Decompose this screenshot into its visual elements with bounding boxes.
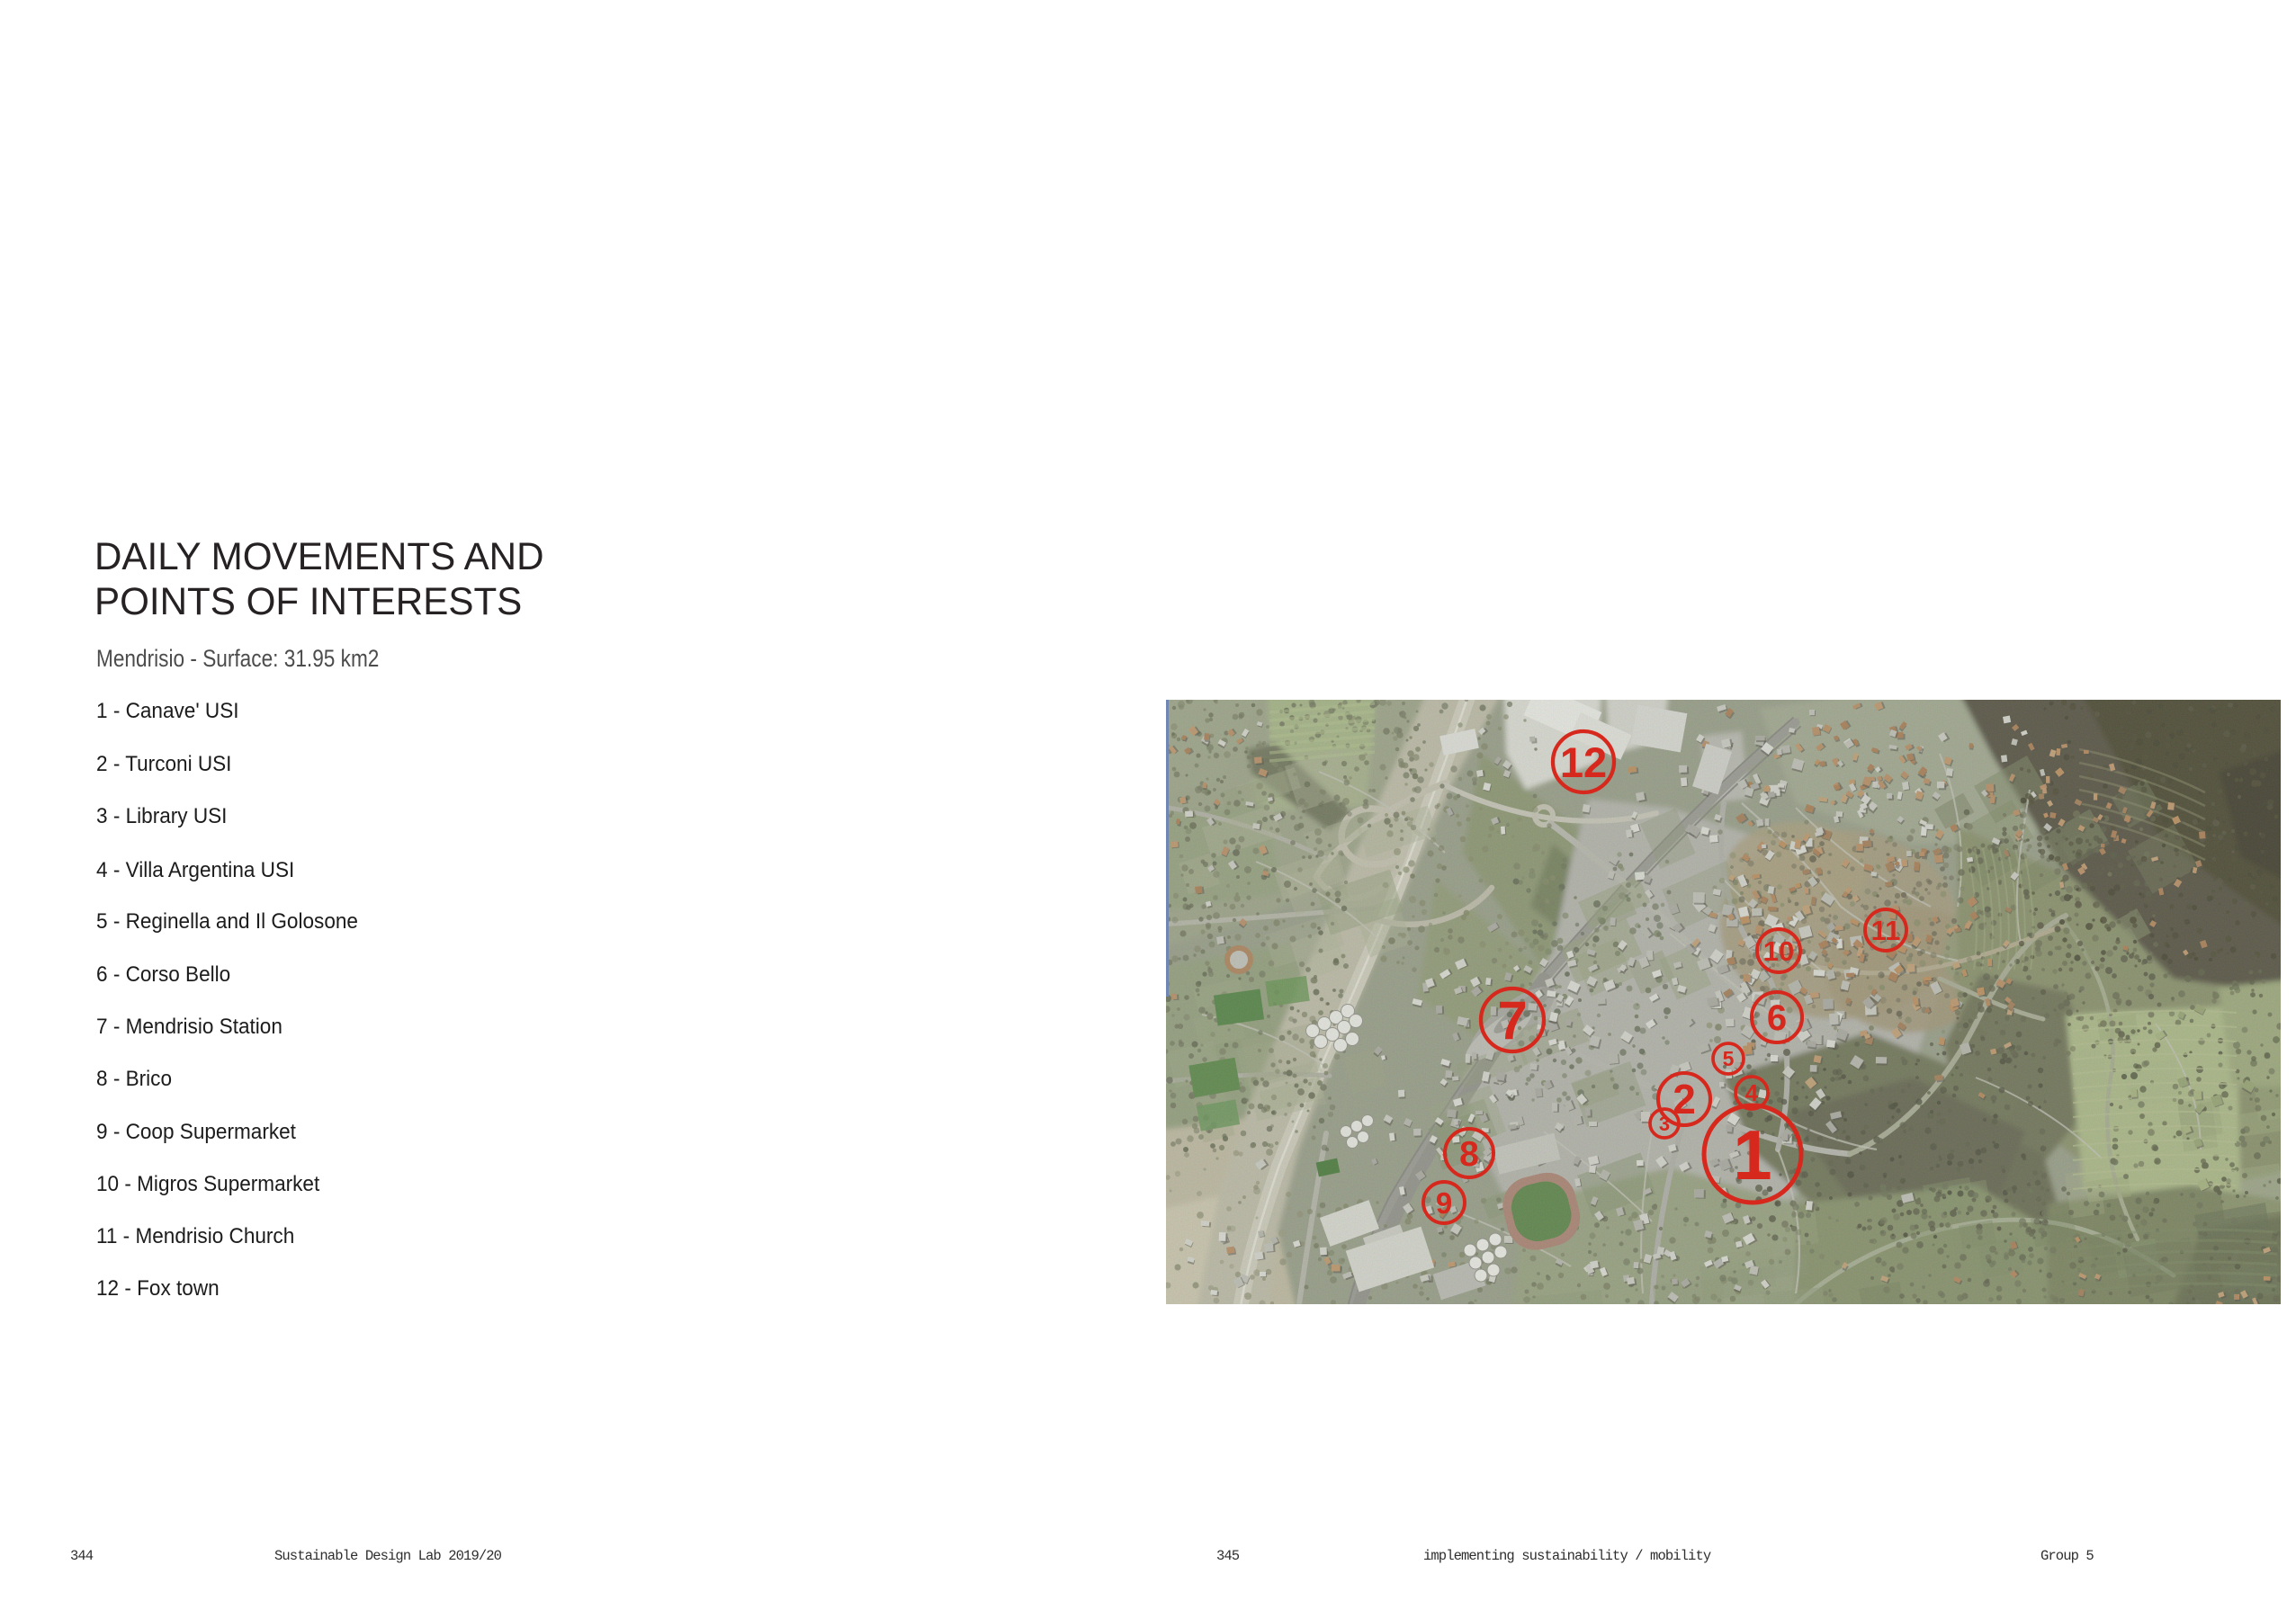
svg-text:2: 2 bbox=[1673, 1076, 1696, 1123]
svg-text:5: 5 bbox=[1723, 1047, 1735, 1070]
svg-text:9: 9 bbox=[1436, 1186, 1452, 1220]
svg-text:11: 11 bbox=[1871, 915, 1901, 946]
svg-text:12: 12 bbox=[1560, 738, 1607, 786]
svg-text:4: 4 bbox=[1745, 1079, 1759, 1106]
svg-text:1: 1 bbox=[1733, 1115, 1771, 1194]
svg-text:8: 8 bbox=[1459, 1135, 1479, 1174]
svg-text:10: 10 bbox=[1763, 935, 1794, 967]
svg-text:7: 7 bbox=[1497, 990, 1527, 1051]
svg-text:3: 3 bbox=[1659, 1113, 1670, 1135]
svg-text:6: 6 bbox=[1767, 998, 1787, 1038]
